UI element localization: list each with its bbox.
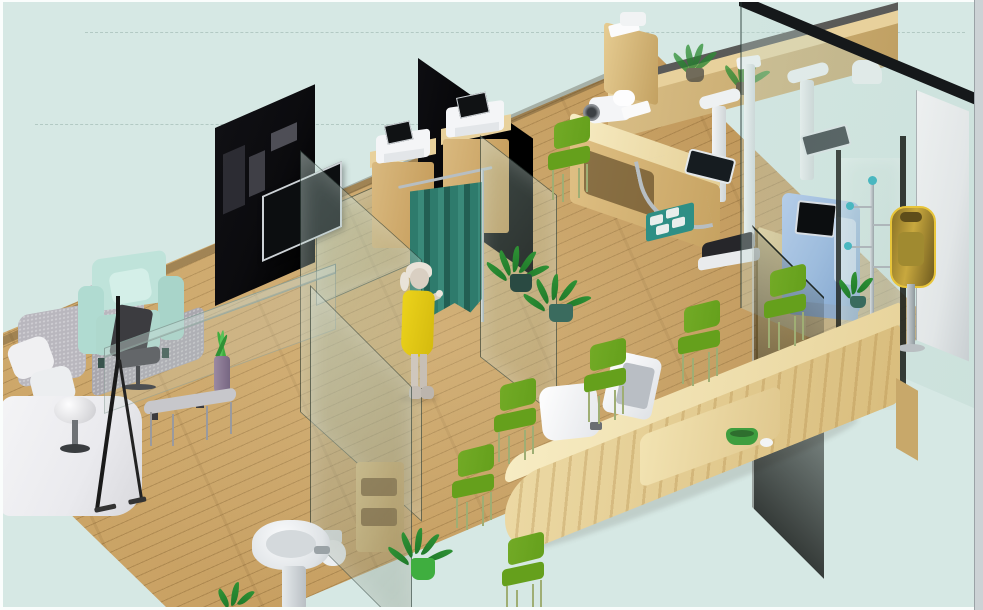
easel-pole bbox=[116, 296, 120, 366]
dispenser-handle bbox=[900, 212, 922, 222]
waiting-chair bbox=[452, 452, 498, 532]
green-serving-bowl bbox=[726, 428, 758, 445]
waiting-chair bbox=[494, 386, 540, 466]
ecg-device bbox=[376, 126, 430, 166]
yellow-dress bbox=[401, 290, 435, 357]
waiting-chair bbox=[502, 540, 548, 610]
chair-leg bbox=[802, 312, 804, 340]
lamp-stem bbox=[72, 420, 78, 446]
chair-leg bbox=[552, 170, 554, 200]
dispenser-pole bbox=[907, 284, 915, 346]
chair-seat bbox=[584, 367, 626, 393]
chair-leg bbox=[778, 322, 780, 350]
chair-leg bbox=[768, 318, 770, 348]
wardrobe-item bbox=[249, 150, 265, 197]
rack-pole bbox=[870, 182, 874, 328]
mat-tile bbox=[672, 216, 685, 228]
frame-left bbox=[0, 0, 3, 610]
chair-leg bbox=[562, 174, 564, 202]
easel-foot bbox=[128, 496, 147, 505]
rack-ball bbox=[868, 176, 877, 185]
waiting-chair bbox=[584, 346, 630, 426]
chair-leg bbox=[466, 502, 468, 530]
pot bbox=[510, 274, 532, 292]
chair-leg bbox=[490, 492, 492, 520]
chair-seat bbox=[678, 329, 720, 355]
hand bbox=[436, 290, 443, 297]
chair-leg bbox=[498, 432, 500, 462]
bench-leg bbox=[230, 402, 232, 434]
facade-corner-edge bbox=[740, 0, 742, 308]
rack-arm bbox=[850, 246, 872, 248]
ecg-device bbox=[446, 98, 504, 142]
chair-leg bbox=[456, 498, 458, 528]
sink-basin bbox=[266, 530, 316, 558]
chair-leg bbox=[622, 386, 624, 414]
rack-ball bbox=[846, 202, 854, 210]
lamp-base bbox=[60, 444, 90, 453]
chair-seat bbox=[764, 293, 806, 319]
sink-pedestal bbox=[282, 566, 306, 610]
boot bbox=[421, 386, 434, 399]
chair-seat bbox=[452, 473, 494, 499]
chair-leg bbox=[794, 316, 796, 346]
computer-mouse bbox=[760, 438, 773, 447]
rack-arm bbox=[852, 206, 872, 208]
chair-leg bbox=[614, 390, 616, 420]
easel-leg bbox=[95, 360, 120, 511]
frame-top bbox=[0, 0, 983, 2]
white-device bbox=[620, 12, 646, 26]
rack-arm bbox=[872, 224, 892, 226]
sink-tap bbox=[314, 546, 330, 554]
chair-leg bbox=[692, 358, 694, 386]
waiting-chair bbox=[678, 308, 724, 388]
mat-tile bbox=[656, 223, 669, 235]
pedestal-sink bbox=[252, 520, 336, 610]
chair-leg bbox=[598, 396, 600, 424]
rack-ball bbox=[844, 242, 852, 250]
dispenser-face bbox=[898, 232, 924, 266]
pot bbox=[686, 68, 704, 82]
reception-counter-side bbox=[896, 378, 918, 461]
bench-leg bbox=[172, 414, 174, 446]
face bbox=[410, 268, 429, 289]
bench-leg bbox=[150, 412, 152, 446]
chair-leg bbox=[716, 348, 718, 376]
chair-leg bbox=[532, 426, 534, 454]
chair-leg bbox=[586, 164, 588, 192]
dispenser-base bbox=[897, 344, 925, 352]
leg bbox=[411, 354, 418, 388]
station-chair bbox=[548, 124, 594, 204]
ponytail bbox=[400, 272, 409, 291]
kiosk-screen bbox=[794, 200, 837, 238]
chair-seat bbox=[494, 407, 536, 433]
pot bbox=[411, 558, 435, 580]
clinic-3d-render bbox=[0, 0, 983, 610]
chair-leg bbox=[682, 354, 684, 384]
frame-right bbox=[974, 0, 983, 610]
wardrobe-shelf bbox=[223, 145, 245, 215]
chair-leg bbox=[708, 352, 710, 382]
chair-leg bbox=[482, 496, 484, 526]
wardrobe-item bbox=[271, 122, 297, 151]
wire-bench bbox=[144, 398, 240, 450]
easel-stand bbox=[92, 296, 148, 522]
chair-seat bbox=[502, 561, 544, 587]
chair-seat bbox=[548, 145, 590, 171]
chair-leg bbox=[524, 430, 526, 460]
bp-cuff bbox=[613, 90, 635, 106]
leg bbox=[420, 354, 427, 388]
easel-leg bbox=[118, 360, 143, 499]
chair-leg bbox=[508, 436, 510, 464]
waiting-chair bbox=[764, 272, 810, 352]
bowl-inner bbox=[730, 430, 754, 437]
bench-leg bbox=[206, 406, 208, 440]
pot bbox=[549, 304, 573, 322]
chair-leg bbox=[578, 168, 580, 198]
chair-leg bbox=[540, 580, 542, 608]
chair-leg bbox=[588, 392, 590, 422]
pot bbox=[850, 296, 866, 308]
